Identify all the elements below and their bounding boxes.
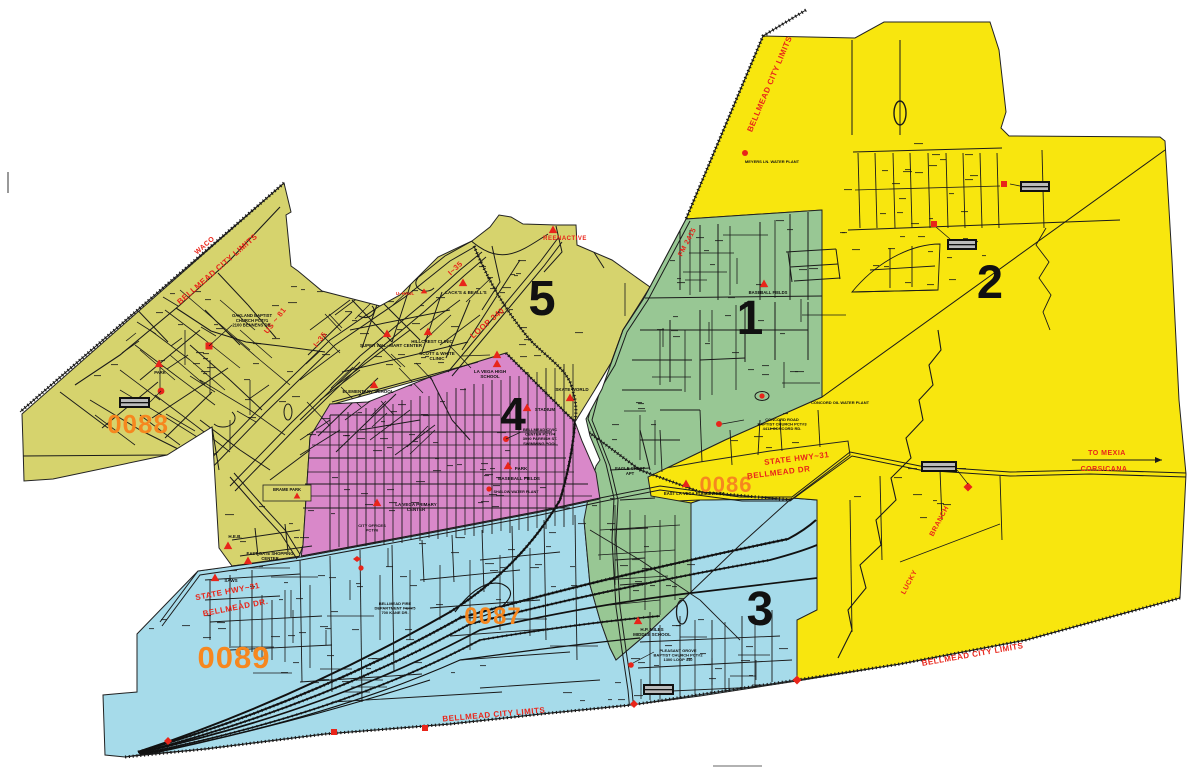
svg-text:4412 CONCORD RD.: 4412 CONCORD RD. [763,426,802,431]
svg-text:SHALOW WATER PLANT: SHALOW WATER PLANT [493,490,539,494]
svg-text:CLINIC: CLINIC [430,356,446,361]
svg-text:HILLCREST CLINIC: HILLCREST CLINIC [411,339,453,344]
svg-text:4: 4 [500,388,526,440]
svg-text:0088: 0088 [107,409,169,439]
svg-text:5: 5 [528,272,555,326]
svg-text:H.E.B.: H.E.B. [228,534,241,539]
svg-text:MEYERS LN. WATER PLANT: MEYERS LN. WATER PLANT [745,159,800,164]
svg-text:U~HAUL: U~HAUL [396,291,415,296]
svg-text:2: 2 [977,255,1003,308]
svg-text:700 KANE DR.: 700 KANE DR. [381,610,408,615]
svg-text:TO MEXIA: TO MEXIA [1088,450,1126,457]
svg-text:3: 3 [747,583,774,636]
svg-text:BASEBALL FIELDS: BASEBALL FIELDS [749,290,788,295]
svg-text:STADIUM: STADIUM [535,407,555,412]
svg-text:APT: APT [626,471,635,476]
svg-text:EAST LA VEGA ELEMENTARY: EAST LA VEGA ELEMENTARY [664,491,724,496]
svg-text:LACK'S & BEALL'S: LACK'S & BEALL'S [445,290,486,295]
svg-text:0089: 0089 [198,640,271,675]
svg-text:MIDDLE SCHOOL: MIDDLE SCHOOL [633,632,671,637]
svg-text:ELEMENTARY SCHOOL: ELEMENTARY SCHOOL [343,389,394,394]
svg-text:BASEBALL FIELDS: BASEBALL FIELDS [498,476,540,481]
svg-text:REENACTIVE: REENACTIVE [543,236,587,242]
svg-text:1: 1 [737,292,764,345]
svg-text:2100 BENNENS DR.: 2100 BENNENS DR. [232,323,271,328]
svg-text:PARK: PARK [154,370,166,375]
svg-text:SCHOOL: SCHOOL [480,374,500,379]
svg-text:PCT#6: PCT#6 [366,528,379,533]
svg-text:CENTER: CENTER [261,556,278,561]
svg-text:0087: 0087 [464,603,521,630]
svg-text:CONCORD OIL WATER PLANT: CONCORD OIL WATER PLANT [811,400,870,405]
svg-text:1300 LOOP 340: 1300 LOOP 340 [663,657,693,662]
svg-text:SWIMMING POOL: SWIMMING POOL [523,441,557,446]
svg-text:SAWS: SAWS [224,578,237,583]
svg-text:BRAME PARK: BRAME PARK [273,487,301,492]
svg-text:CENTER: CENTER [407,507,426,512]
svg-text:PARK: PARK [515,466,528,471]
svg-text:SKATE WORLD: SKATE WORLD [555,387,589,392]
svg-text:CORSICANA: CORSICANA [1081,466,1128,473]
